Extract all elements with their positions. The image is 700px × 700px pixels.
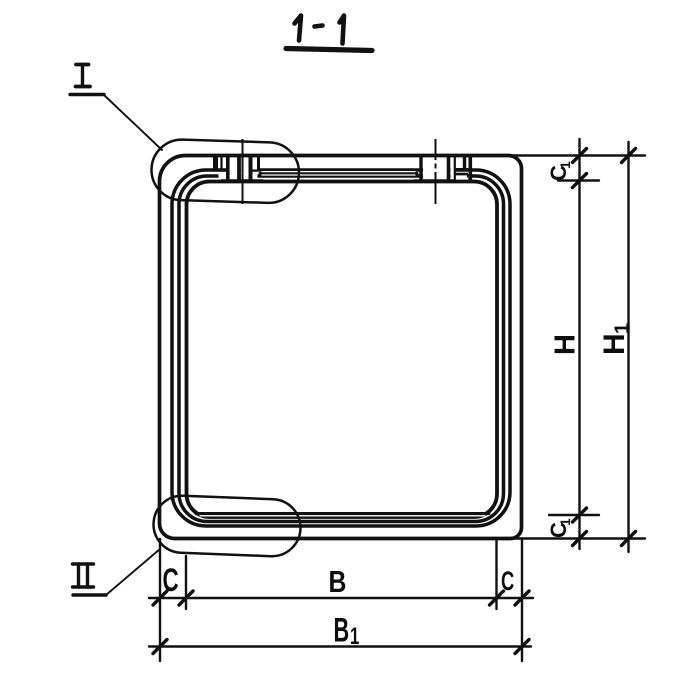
- svg-text:B: B: [329, 564, 347, 598]
- svg-text:H: H: [550, 334, 582, 355]
- svg-text:C: C: [501, 565, 515, 595]
- svg-text:C: C: [163, 562, 179, 598]
- svg-text:1: 1: [557, 518, 573, 526]
- svg-text:B: B: [334, 612, 350, 650]
- svg-text:1: 1: [612, 323, 634, 334]
- svg-text:H: H: [598, 333, 631, 355]
- svg-text:1: 1: [350, 623, 359, 650]
- svg-text:1: 1: [557, 161, 573, 169]
